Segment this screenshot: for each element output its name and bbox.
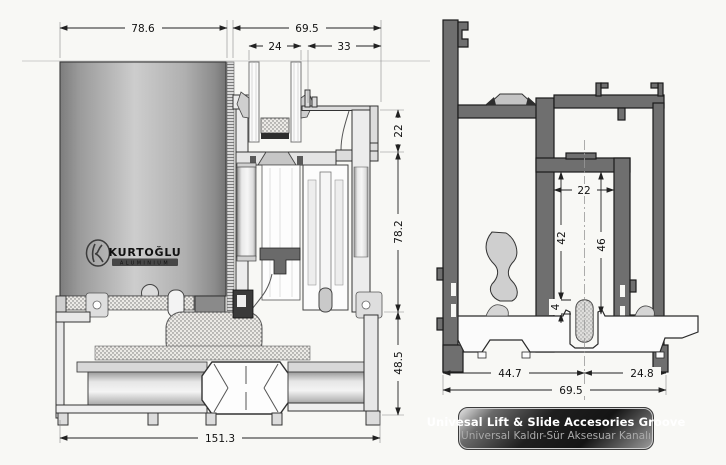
glass-spacer-bar (261, 118, 289, 133)
infill-strip-left (237, 167, 256, 257)
sill-infill-right (288, 372, 372, 403)
accessory-groove-section-drawing: 22 42 46 4 44.7 24.8 69.5 (430, 0, 726, 465)
infill-strip-right (354, 167, 368, 257)
dim-24-8: 24.8 (630, 368, 653, 380)
gasket-seat-right (635, 306, 654, 316)
dim-44-7: 44.7 (498, 368, 521, 380)
dim-78-6: 78.6 (131, 23, 155, 35)
logo-subtitle-text: ALUMINIUM (120, 261, 170, 267)
lock-roller (319, 288, 332, 312)
dim-groove-42: 42 (556, 231, 568, 244)
sliding-panel (56, 62, 226, 322)
gasket-seat-left (486, 305, 508, 316)
dim-48-5: 48.5 (393, 351, 405, 374)
right-post (653, 103, 664, 345)
dim-151-3: 151.3 (205, 433, 235, 445)
sill-infill-left (88, 372, 207, 405)
dim-78-2: 78.2 (393, 220, 405, 243)
dim-groove-46: 46 (596, 238, 608, 252)
dim-22-head: 22 (393, 124, 405, 137)
lift-slide-cross-section-drawing: KURTOĞLU ALUMINIUM (0, 0, 435, 465)
lock-rod (320, 172, 331, 290)
top-hook (458, 22, 468, 47)
technical-drawing-page: KURTOĞLU ALUMINIUM (0, 0, 726, 465)
caption-subtitle: Universal Kaldır-Sür Aksesuar Kanalı (461, 430, 651, 442)
dim-69-5-bottom: 69.5 (559, 385, 582, 397)
gasket-foot-right (526, 97, 537, 105)
logo-brand-text: KURTOĞLU (108, 246, 181, 259)
rail-left (458, 105, 540, 118)
dim-69-5: 69.5 (295, 23, 318, 35)
dim-track-4: 4 (550, 303, 562, 310)
caption-box: Univesal Lift & Slide Accesories Groove … (458, 407, 654, 450)
glass-sealant (261, 133, 289, 139)
gasket-foot-left (485, 97, 496, 105)
dim-24: 24 (268, 41, 282, 53)
caption-title: Univesal Lift & Slide Accesories Groove (427, 415, 686, 429)
guide-bracket (486, 232, 517, 301)
rail-right (554, 95, 664, 108)
dim-33: 33 (337, 41, 350, 53)
dim-groove-22: 22 (577, 185, 590, 197)
